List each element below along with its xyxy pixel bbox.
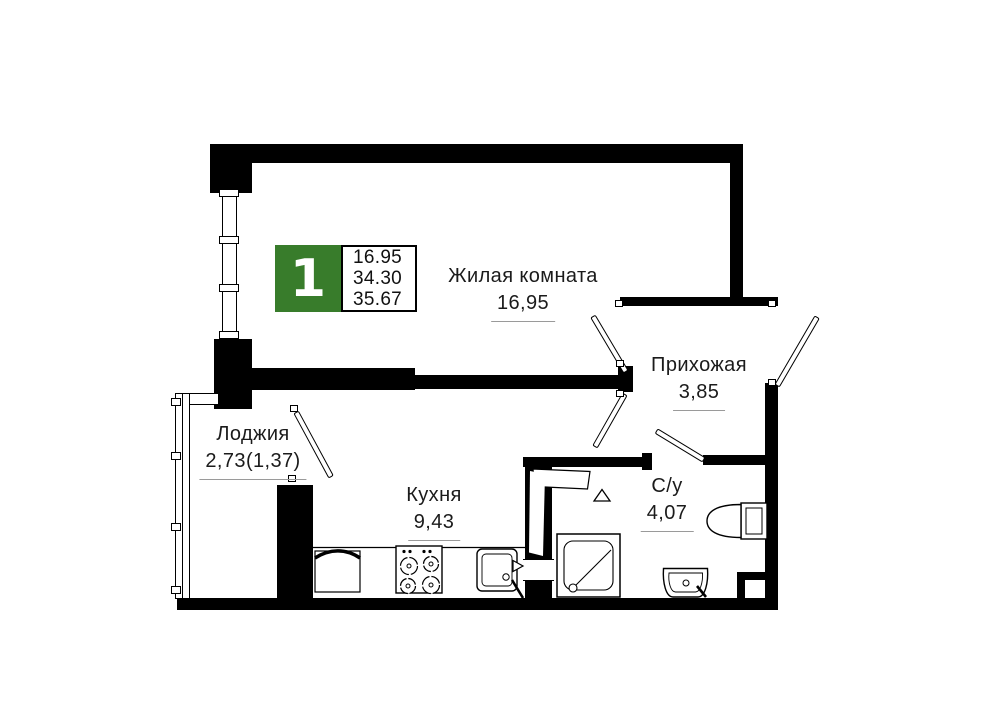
room-name: Жилая комната bbox=[448, 263, 598, 290]
living-window-tick bbox=[219, 284, 239, 292]
kitchen-cabinet-icon bbox=[315, 551, 360, 592]
living-window-tick bbox=[219, 331, 239, 339]
room-area: 4,07 bbox=[641, 500, 694, 532]
loggia-glazing-tick bbox=[171, 398, 181, 406]
loggia-glazing-tick bbox=[171, 586, 181, 594]
door-hinge bbox=[768, 379, 776, 386]
room-name: Лоджия bbox=[199, 421, 306, 448]
room-area: 16,95 bbox=[491, 290, 555, 322]
room-label-living: Жилая комната 16,95 bbox=[448, 263, 598, 322]
loggia-glazing-tick bbox=[171, 523, 181, 531]
door-hinge bbox=[616, 360, 624, 367]
room-area: 9,43 bbox=[408, 509, 461, 541]
stove-icon bbox=[396, 546, 442, 594]
unit-badge: 1 16.95 34.30 35.67 bbox=[275, 245, 417, 312]
living-window-tick bbox=[219, 236, 239, 244]
room-label-hallway: Прихожая 3,85 bbox=[651, 352, 747, 411]
area-main-value: 34.30 bbox=[353, 268, 415, 289]
wall-niche-leaf bbox=[529, 471, 545, 556]
room-name: Прихожая bbox=[651, 352, 747, 379]
door-hinge bbox=[290, 405, 298, 412]
room-label-loggia: Лоджия 2,73(1,37) bbox=[199, 421, 306, 480]
room-area: 3,85 bbox=[673, 379, 726, 411]
door-hinge bbox=[768, 300, 776, 307]
bathroom-sink-icon bbox=[663, 569, 707, 598]
room-name: Кухня bbox=[406, 482, 462, 509]
room-label-bathroom: С/у 4,07 bbox=[641, 473, 694, 532]
areas-panel: 16.95 34.30 35.67 bbox=[341, 245, 417, 312]
room-name: С/у bbox=[641, 473, 694, 500]
floorplan: 1 16.95 34.30 35.67 Жилая комната 16,95 … bbox=[0, 0, 1000, 707]
room-label-kitchen: Кухня 9,43 bbox=[406, 482, 462, 541]
door-hinge bbox=[616, 390, 624, 397]
toilet-icon bbox=[707, 503, 767, 539]
kitchen-sink-icon bbox=[477, 549, 523, 598]
door-hinge bbox=[615, 300, 623, 307]
room-area: 2,73(1,37) bbox=[199, 448, 306, 480]
shower-tray-icon bbox=[557, 534, 620, 597]
living-window-tick bbox=[219, 189, 239, 197]
area-living-value: 16.95 bbox=[353, 247, 415, 268]
area-total-value: 35.67 bbox=[353, 289, 415, 310]
loggia-glazing-tick bbox=[171, 452, 181, 460]
fixtures-layer bbox=[0, 0, 1000, 707]
rooms-count-badge: 1 bbox=[275, 245, 341, 312]
slide-direction-icon bbox=[594, 490, 610, 502]
